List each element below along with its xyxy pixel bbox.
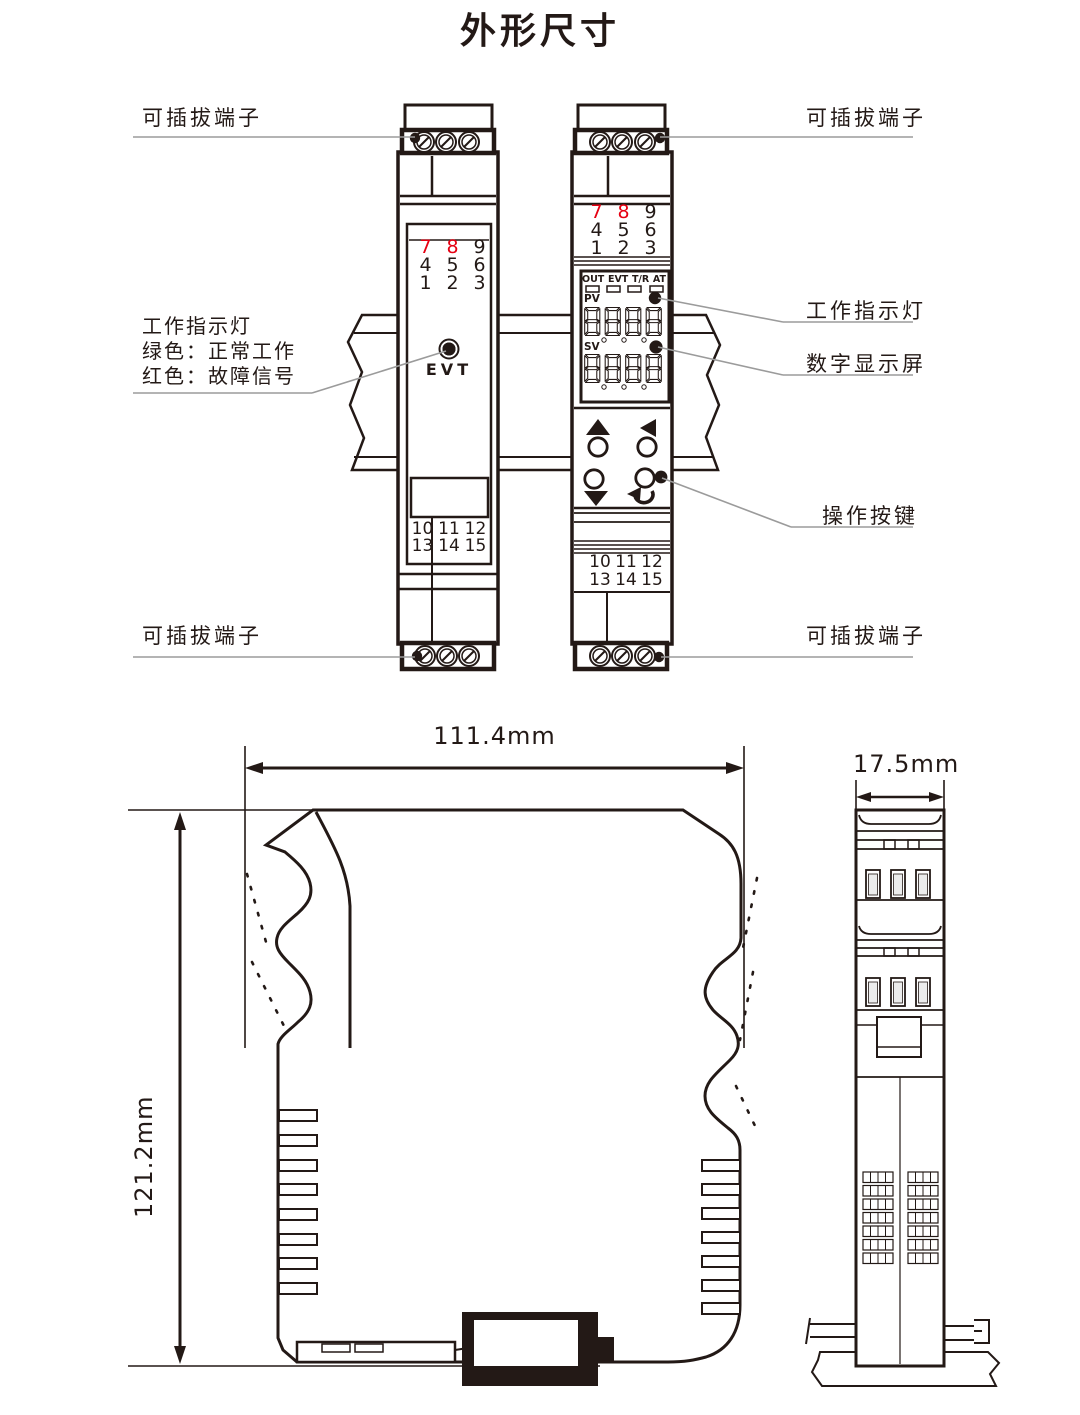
terminal-dot-top-left xyxy=(410,133,420,143)
callout-pluggable-terminal-top-left: 可插拔端子 xyxy=(142,102,262,132)
terminal-number: 1 xyxy=(583,239,610,257)
callout-work-indicator-right: 工作指示灯 xyxy=(806,295,926,325)
terminal-number: 3 xyxy=(637,239,664,257)
left-module-bottom-terminal-numbers: 10 11 12 13 14 15 xyxy=(409,521,489,555)
right-module-top-terminal-numbers: 7 8 9 4 5 6 1 2 3 xyxy=(583,203,664,257)
line-art: 8888 8888 xyxy=(0,0,1080,1415)
callout-operation-buttons: 操作按键 xyxy=(822,500,918,530)
terminal-number: 13 xyxy=(409,538,436,555)
right-module-bottom-terminal-numbers: 10 11 12 13 14 15 xyxy=(587,554,665,590)
terminal-number: 14 xyxy=(436,538,462,555)
terminal-number: 15 xyxy=(462,538,489,555)
side-view xyxy=(247,810,757,1386)
terminal-number: 13 xyxy=(587,572,613,590)
terminal-number: 15 xyxy=(639,572,665,590)
dimension-depth: 17.5mm xyxy=(853,750,947,778)
terminal-number: 2 xyxy=(610,239,637,257)
evt-led-label: EVT xyxy=(424,360,474,379)
front-view-left-module xyxy=(398,105,498,669)
terminal-number: 3 xyxy=(466,274,493,292)
callout-pluggable-terminal-bottom-right: 可插拔端子 xyxy=(806,620,926,650)
status-label-tr: T/R xyxy=(632,274,649,285)
terminal-number: 1 xyxy=(412,274,439,292)
callout-line-2: 绿色：正常工作 xyxy=(142,339,296,364)
left-module-top-terminal-numbers: 7 8 9 4 5 6 1 2 3 xyxy=(412,238,493,292)
outline-dimensions-diagram: 外形尺寸 xyxy=(0,0,1080,1415)
callout-line-3: 红色：故障信号 xyxy=(142,364,296,389)
callout-digital-display: 数字显示屏 xyxy=(806,348,926,378)
dimension-width: 111.4mm xyxy=(245,722,744,750)
pv-label: PV xyxy=(584,293,600,305)
end-view xyxy=(806,810,999,1386)
dimension-height: 121.2mm xyxy=(130,1052,158,1262)
din-rail-section xyxy=(462,1312,614,1386)
sv-label: SV xyxy=(584,341,600,353)
callout-pluggable-terminal-top-right: 可插拔端子 xyxy=(806,102,926,132)
status-label-evt: EVT xyxy=(608,274,628,285)
display-status-labels: OUT EVT T/R AT xyxy=(582,274,666,285)
terminal-dot-bottom-left xyxy=(412,651,422,661)
terminal-dot-top-right xyxy=(655,133,665,143)
status-label-out: OUT xyxy=(582,274,604,285)
led-dot xyxy=(443,343,456,356)
terminal-number: 2 xyxy=(439,274,466,292)
callout-pluggable-terminal-bottom-left: 可插拔端子 xyxy=(142,620,262,650)
digital-display: 8888 8888 xyxy=(581,271,669,402)
callout-work-indicator-left: 工作指示灯 绿色：正常工作 红色：故障信号 xyxy=(142,314,296,389)
terminal-number: 14 xyxy=(613,572,639,590)
status-label-at: AT xyxy=(653,274,666,285)
callout-line-1: 工作指示灯 xyxy=(142,314,296,339)
button-dot xyxy=(655,471,668,484)
